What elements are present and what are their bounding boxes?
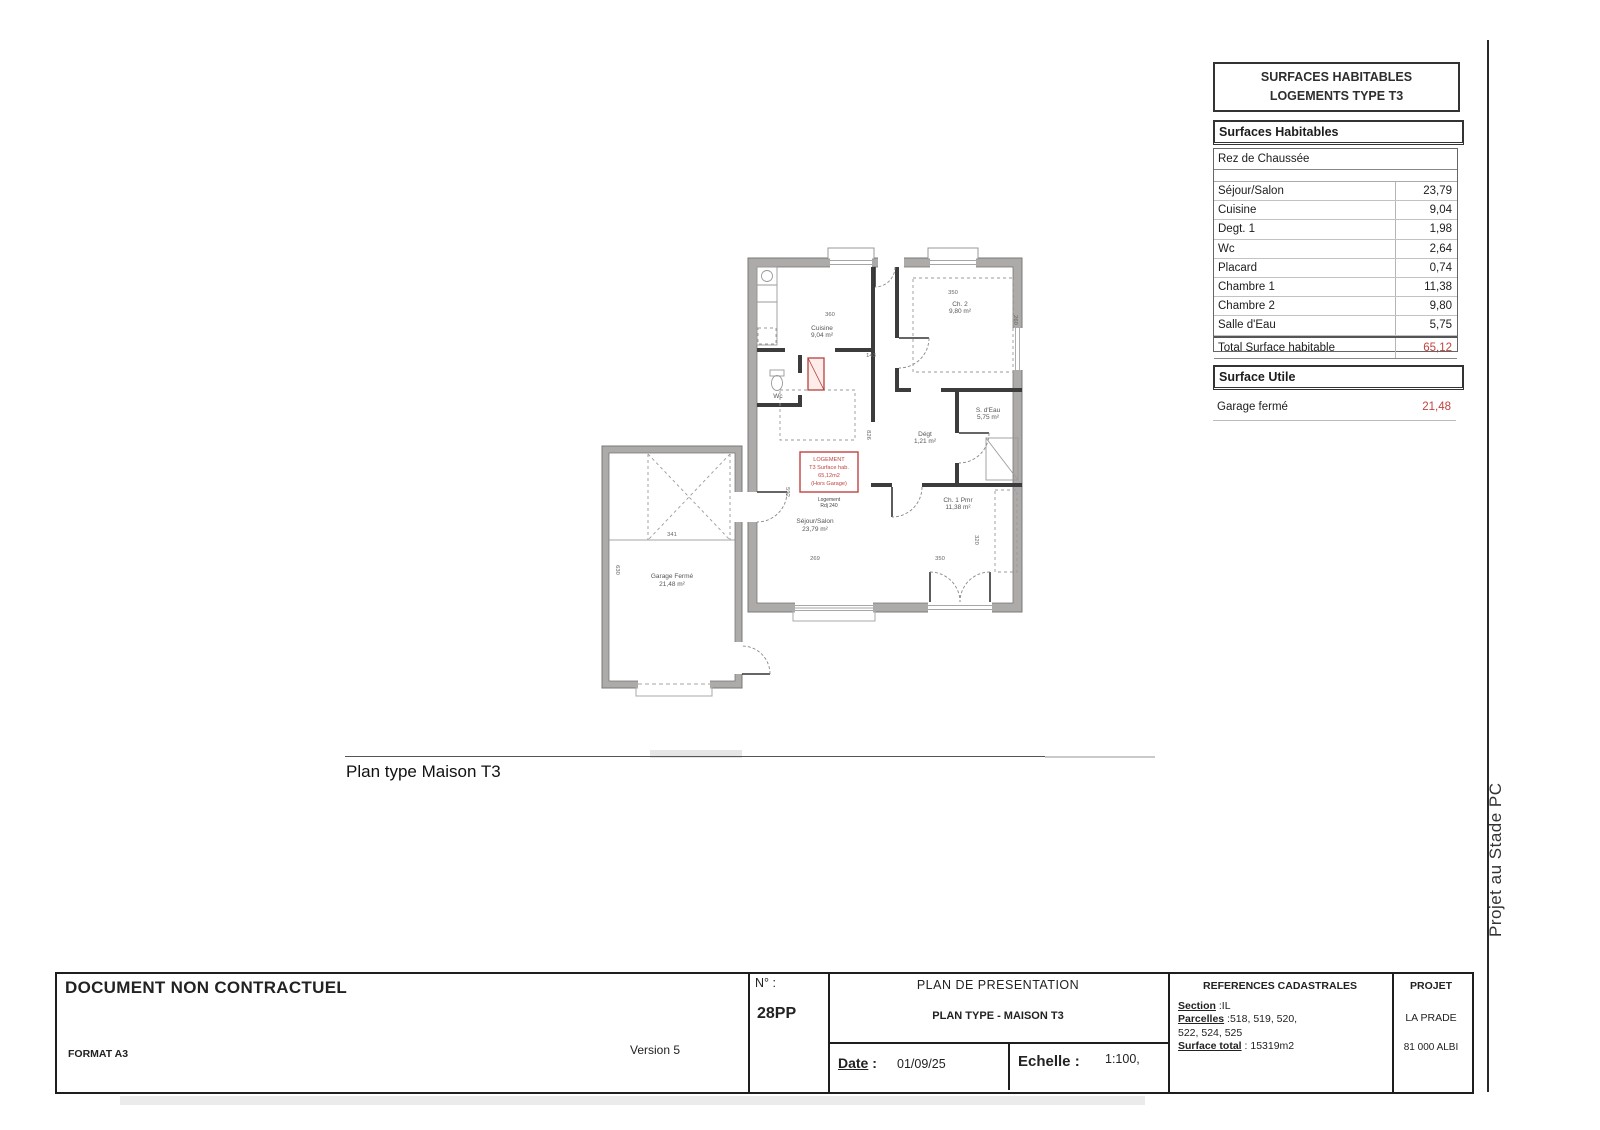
garage-door-sill [636, 688, 712, 696]
project-name: LA PRADE [1392, 1012, 1470, 1024]
parcelles-label: Parcelles [1178, 1013, 1224, 1025]
garage-exterior-door-gap [735, 642, 743, 674]
room-label: Placard [1214, 259, 1396, 277]
cadastral-parcelles: Parcelles :518, 519, 520, [1178, 1013, 1388, 1026]
room-area: 23,79 [1396, 182, 1457, 200]
surfaces-rows: Séjour/Salon23,79 Cuisine9,04 Degt. 11,9… [1214, 181, 1457, 336]
garage-value: 21,48 [1395, 401, 1456, 413]
version-label: Version 5 [630, 1043, 680, 1057]
svg-text:Ch. 2: Ch. 2 [952, 301, 968, 308]
titleblock-number-cell [748, 972, 832, 1094]
plan-title: PLAN DE PRESENTATION [828, 978, 1168, 992]
room-area: 11,38 [1396, 278, 1457, 296]
cadastral-header: REFERENCES CADASTRALES [1168, 980, 1392, 992]
surfaces-title-line1: SURFACES HABITABLES [1261, 68, 1412, 87]
table-row: Cuisine9,04 [1214, 201, 1457, 220]
window-sill [928, 248, 978, 259]
svg-text:320: 320 [973, 535, 979, 545]
svg-text:269: 269 [810, 556, 820, 562]
svg-text:9,80 m²: 9,80 m² [949, 308, 972, 315]
room-label: Chambre 1 [1214, 278, 1396, 296]
number-label: N° : [755, 976, 776, 990]
svg-text:T3 Surface hab.: T3 Surface hab. [809, 465, 849, 471]
garage-label: Garage fermé [1213, 401, 1395, 413]
svg-text:(Hors Garage): (Hors Garage) [811, 481, 847, 487]
boiler [808, 358, 824, 390]
surface-label: Surface total [1178, 1040, 1242, 1052]
house-interior [757, 267, 1013, 603]
table-row: Chambre 111,38 [1214, 278, 1457, 297]
project-city: 81 000 ALBI [1392, 1042, 1470, 1053]
floor-plan: LOGEMENT T3 Surface hab. 65,12m2 (Hors G… [590, 240, 1040, 710]
table-row: Chambre 29,80 [1214, 297, 1457, 316]
number-value: 28PP [757, 1005, 796, 1023]
svg-text:Rdj 240: Rdj 240 [820, 503, 837, 509]
svg-text:Cuisine: Cuisine [811, 325, 833, 332]
date-label-text: Date [838, 1055, 868, 1071]
date-value: 01/09/25 [897, 1057, 946, 1071]
section-label: Section [1178, 1000, 1216, 1012]
room-label: Cuisine [1214, 201, 1396, 219]
surface-value: : 15319m2 [1242, 1040, 1295, 1052]
svg-text:S. d'Eau: S. d'Eau [976, 407, 1001, 414]
table-row: Degt. 11,98 [1214, 220, 1457, 239]
scale-value: 1:100, [1105, 1052, 1140, 1066]
document-title: DOCUMENT NON CONTRACTUEL [65, 978, 347, 998]
garage-interior [609, 453, 735, 681]
titleblock-date-divider [1008, 1042, 1010, 1090]
room-area: 5,75 [1396, 316, 1457, 334]
svg-text:341: 341 [667, 532, 677, 538]
scan-artifact-strip [120, 1096, 1145, 1105]
titleblock-date-row [828, 1042, 1168, 1092]
svg-text:Garage Fermé: Garage Fermé [651, 573, 694, 580]
svg-text:Ch. 1 Pmr: Ch. 1 Pmr [943, 497, 973, 504]
room-label: Chambre 2 [1214, 297, 1396, 315]
format-label: FORMAT A3 [68, 1048, 128, 1060]
svg-text:23,79 m²: 23,79 m² [802, 526, 828, 533]
room-area: 9,80 [1396, 297, 1457, 315]
date-colon: : [872, 1055, 877, 1071]
section-value: :IL [1216, 1000, 1231, 1012]
svg-text:11,38 m²: 11,38 m² [945, 504, 971, 511]
svg-text:21,48 m²: 21,48 m² [659, 581, 685, 588]
garage-house-door-gap [734, 492, 758, 522]
room-area: 9,04 [1396, 201, 1457, 219]
svg-text:360: 360 [825, 312, 835, 318]
svg-text:Dégt: Dégt [918, 431, 932, 438]
cadastral-surface: Surface total : 15319m2 [1178, 1040, 1388, 1053]
plan-caption: Plan type Maison T3 [346, 762, 501, 782]
svg-text:592: 592 [784, 487, 790, 497]
total-value: 65,12 [1396, 338, 1457, 358]
surfaces-title-box: SURFACES HABITABLES LOGEMENTS TYPE T3 [1213, 62, 1460, 112]
total-label: Total Surface habitable [1214, 338, 1396, 358]
room-label: Séjour/Salon [1214, 182, 1396, 200]
surfaces-table: Rez de Chaussée Séjour/Salon23,79 Cuisin… [1213, 148, 1458, 352]
parcelles-value: :518, 519, 520, [1224, 1013, 1297, 1025]
scale-label: Echelle : [1018, 1053, 1080, 1070]
garage-row: Garage fermé 21,48 [1213, 394, 1456, 421]
window-sill [793, 612, 875, 621]
cadastral-parcelles2: 522, 524, 525 [1178, 1027, 1388, 1040]
side-note-vertical: Projet au Stade PC [1486, 740, 1516, 980]
room-area: 1,98 [1396, 220, 1457, 238]
svg-text:350: 350 [948, 290, 958, 296]
svg-text:Wc: Wc [773, 393, 783, 400]
floor-label: Rez de Chaussée [1214, 149, 1457, 170]
svg-text:LOGEMENT: LOGEMENT [813, 457, 845, 463]
table-row: Wc2,64 [1214, 240, 1457, 259]
table-row: Séjour/Salon23,79 [1214, 182, 1457, 201]
caption-underline [345, 756, 1045, 757]
room-label: Degt. 1 [1214, 220, 1396, 238]
room-label: Wc [1214, 240, 1396, 258]
floor-plan-svg: LOGEMENT T3 Surface hab. 65,12m2 (Hors G… [590, 240, 1040, 710]
room-area: 0,74 [1396, 259, 1457, 277]
cadastral-body: Section :IL Parcelles :518, 519, 520, 52… [1178, 1000, 1388, 1054]
surface-utile-header: Surface Utile [1213, 365, 1464, 390]
svg-text:65,12m2: 65,12m2 [818, 473, 840, 479]
table-row: Placard0,74 [1214, 259, 1457, 278]
svg-text:5,75 m²: 5,75 m² [977, 414, 1000, 421]
svg-text:1,21 m²: 1,21 m² [914, 438, 937, 445]
surfaces-title-line2: LOGEMENTS TYPE T3 [1270, 87, 1403, 106]
svg-text:350: 350 [935, 556, 945, 562]
window-sill [828, 248, 874, 259]
date-label: Date : [838, 1055, 877, 1071]
plan-subtitle: PLAN TYPE - MAISON T3 [828, 1010, 1168, 1022]
caption-underline-faint [1045, 756, 1155, 758]
svg-text:9,04 m²: 9,04 m² [811, 332, 834, 339]
room-area: 2,64 [1396, 240, 1457, 258]
svg-text:Séjour/Salon: Séjour/Salon [796, 518, 834, 525]
project-header: PROJET [1392, 980, 1470, 992]
room-label: Salle d'Eau [1214, 316, 1396, 334]
svg-text:260: 260 [1012, 315, 1018, 325]
svg-text:630: 630 [614, 565, 620, 575]
table-row: Salle d'Eau5,75 [1214, 316, 1457, 335]
svg-text:826: 826 [865, 430, 871, 440]
total-row: Total Surface habitable 65,12 [1214, 336, 1457, 359]
surfaces-habitables-header: Surfaces Habitables [1213, 120, 1464, 145]
cadastral-section: Section :IL [1178, 1000, 1388, 1013]
svg-text:143: 143 [866, 353, 876, 359]
